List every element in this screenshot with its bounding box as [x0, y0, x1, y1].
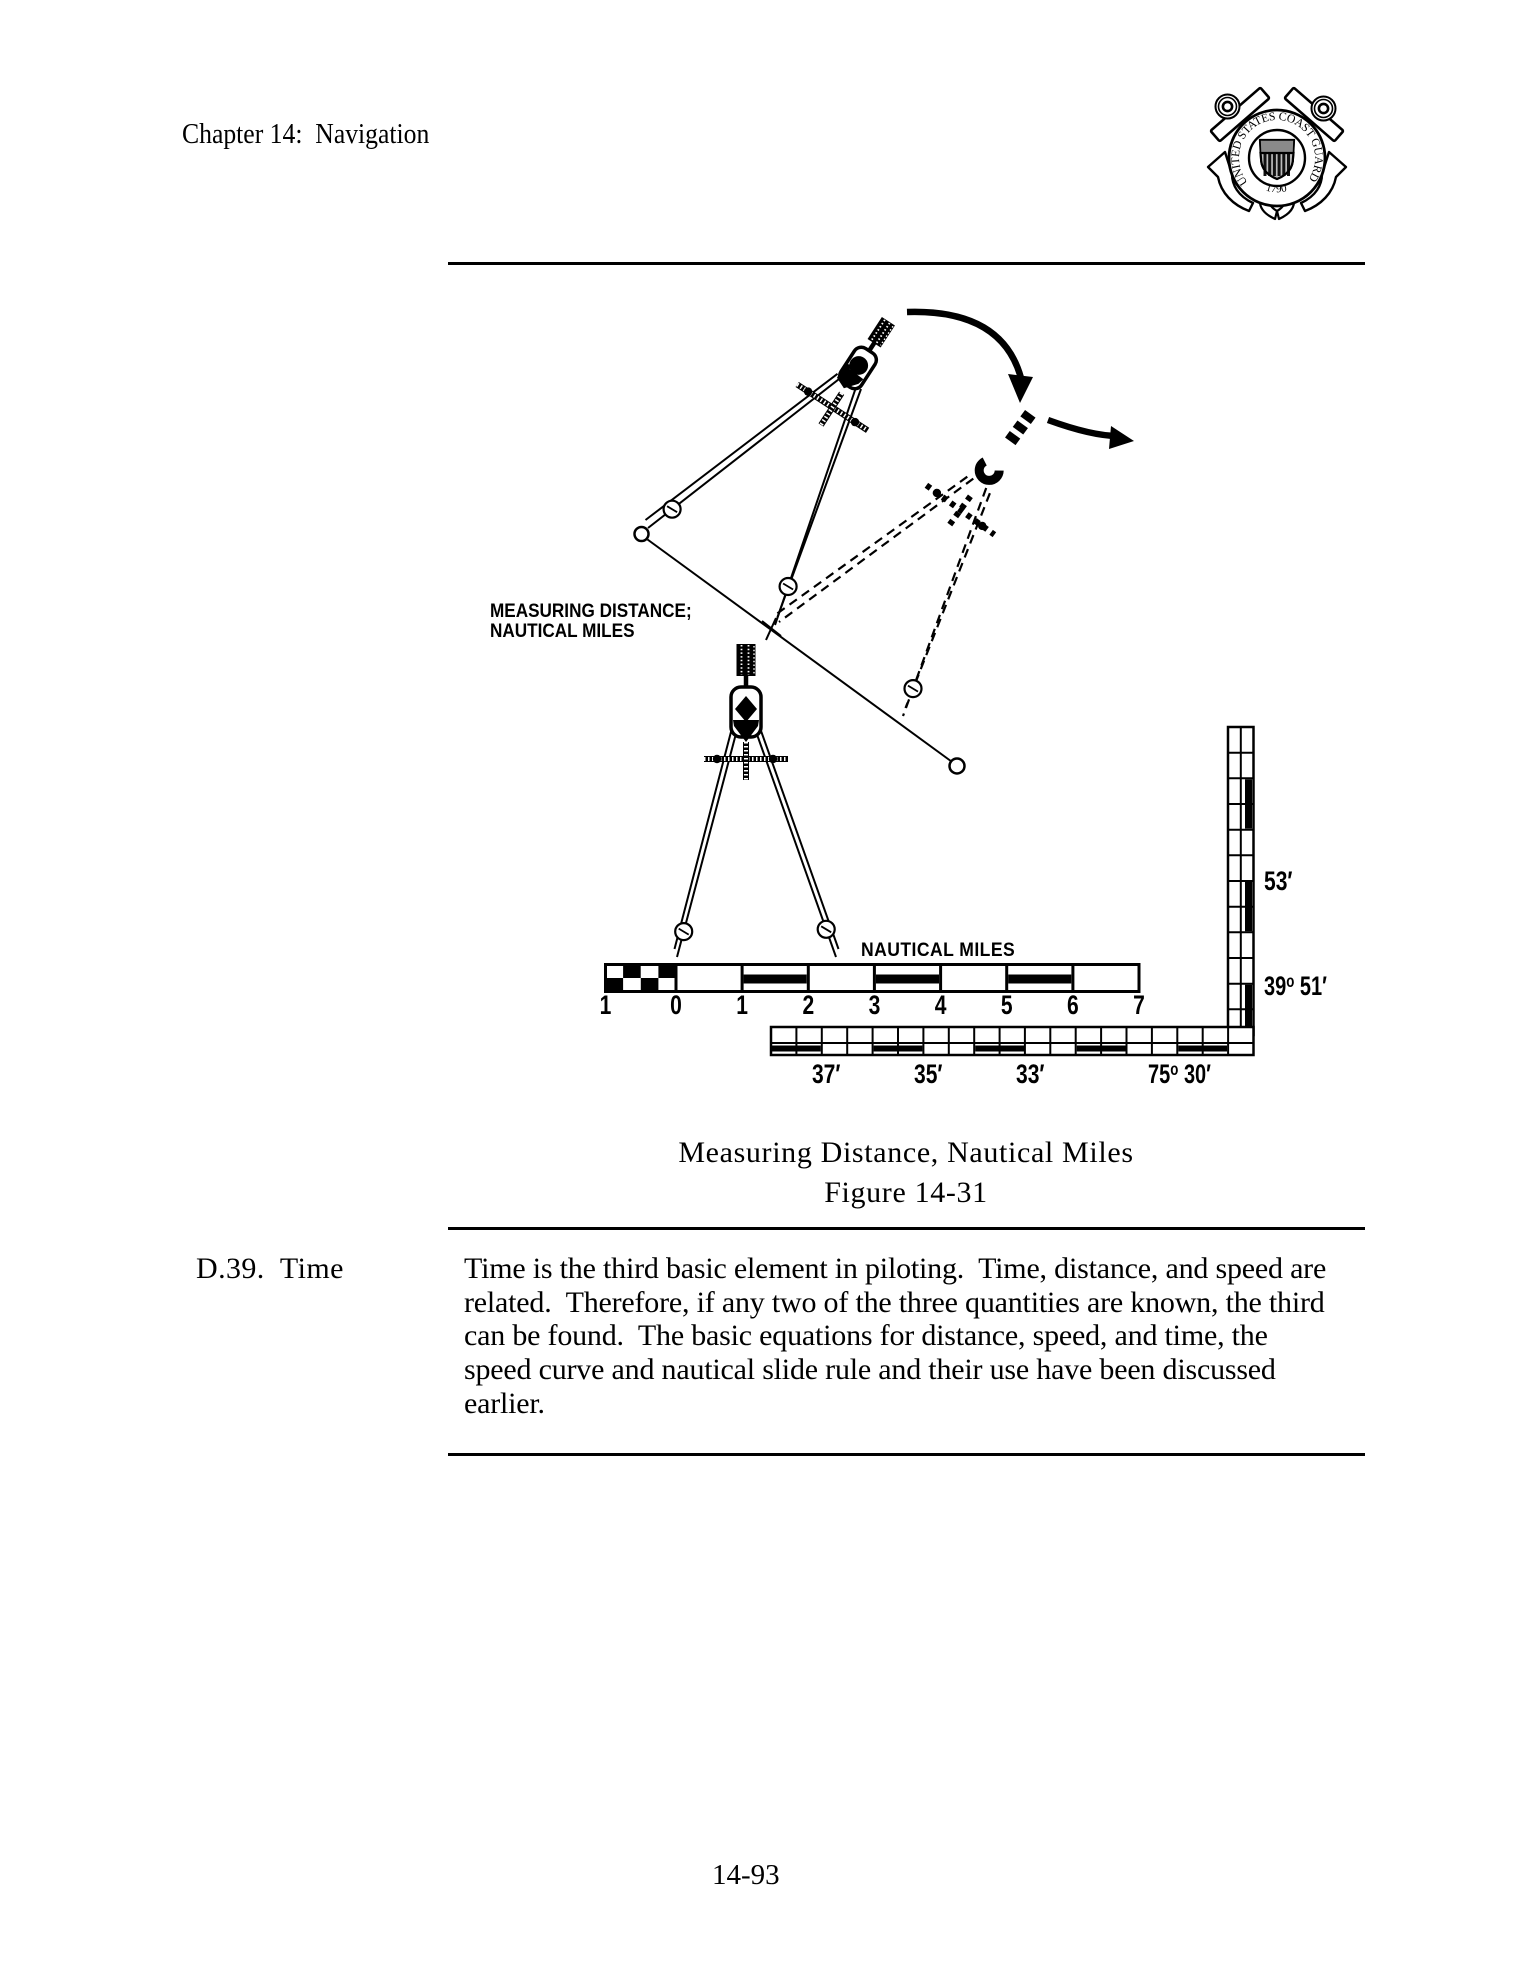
svg-text:NAUTICAL MILES: NAUTICAL MILES	[490, 619, 635, 641]
svg-text:1: 1	[736, 991, 748, 1021]
svg-text:75o 30′: 75o 30′	[1148, 1059, 1211, 1090]
svg-text:2: 2	[802, 991, 814, 1021]
svg-text:5: 5	[1001, 991, 1013, 1021]
svg-text:6: 6	[1067, 991, 1079, 1021]
svg-text:1790: 1790	[1265, 182, 1289, 196]
svg-text:NAUTICAL MILES: NAUTICAL MILES	[861, 938, 1015, 960]
svg-text:53′: 53′	[1264, 867, 1293, 897]
svg-text:37′: 37′	[812, 1060, 841, 1090]
svg-text:33′: 33′	[1016, 1060, 1045, 1090]
svg-text:1: 1	[600, 991, 612, 1021]
svg-text:39o 51′: 39o 51′	[1264, 971, 1327, 1002]
svg-text:MEASURING DISTANCE;: MEASURING DISTANCE;	[490, 599, 692, 621]
svg-text:35′: 35′	[914, 1060, 943, 1090]
svg-text:7: 7	[1133, 991, 1145, 1021]
svg-text:3: 3	[869, 991, 881, 1021]
svg-text:4: 4	[935, 991, 947, 1021]
svg-text:0: 0	[670, 991, 682, 1021]
